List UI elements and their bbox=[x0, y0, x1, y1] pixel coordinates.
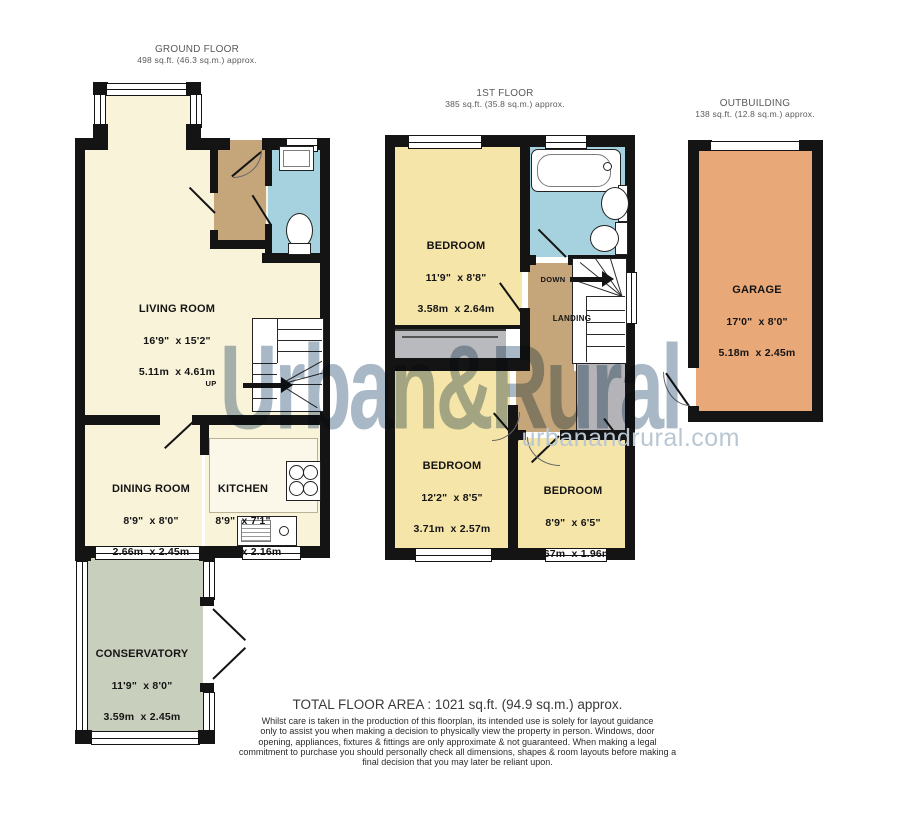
room-size-metric: 3.58m x 2.64m bbox=[395, 304, 517, 315]
room-name: GARAGE bbox=[697, 285, 817, 296]
room-name: BEDROOM bbox=[513, 486, 633, 497]
disclaimer-line: final decision that you may later be rel… bbox=[140, 757, 775, 767]
disclaimer-line: commitment to purchase you should person… bbox=[140, 747, 775, 757]
footer: TOTAL FLOOR AREA : 1021 sq.ft. (94.9 sq.… bbox=[140, 697, 775, 767]
kitchen-label: KITCHEN 8'9" x 7'1" 2.66m x 2.16m bbox=[186, 463, 300, 579]
room-size-imperial: 11'9" x 8'0" bbox=[82, 681, 202, 692]
room-size-metric: 2.66m x 2.16m bbox=[186, 547, 300, 558]
watermark-site: urbanandrural.com bbox=[515, 424, 740, 453]
garage-door bbox=[710, 141, 802, 151]
room-size-imperial: 17'0" x 8'0" bbox=[697, 317, 817, 328]
room-size-metric: 2.67m x 1.96m bbox=[513, 549, 633, 560]
room-size-metric: 3.71m x 2.57m bbox=[392, 524, 512, 535]
room-name: KITCHEN bbox=[186, 484, 300, 495]
floorplan-page: GROUND FLOOR 498 sq.ft. (46.3 sq.m.) app… bbox=[0, 0, 900, 817]
disclaimer-line: Whilst care is taken in the production o… bbox=[140, 716, 775, 726]
room-size-imperial: 12'2" x 8'5" bbox=[392, 493, 512, 504]
bedroom2-label: BEDROOM 12'2" x 8'5" 3.71m x 2.57m bbox=[392, 440, 512, 556]
room-name: BEDROOM bbox=[392, 461, 512, 472]
total-floor-area: TOTAL FLOOR AREA : 1021 sq.ft. (94.9 sq.… bbox=[140, 697, 775, 712]
room-name: BEDROOM bbox=[395, 241, 517, 252]
room-size-imperial: 8'9" x 6'5" bbox=[513, 518, 633, 529]
bedroom1-label: BEDROOM 11'9" x 8'8" 3.58m x 2.64m bbox=[395, 220, 517, 336]
room-name: LIVING ROOM bbox=[117, 304, 237, 315]
room-size-imperial: 8'9" x 7'1" bbox=[186, 516, 300, 527]
room-name: CONSERVATORY bbox=[82, 649, 202, 660]
disclaimer-line: opening, appliances, fixtures & fittings… bbox=[140, 737, 775, 747]
disclaimer-line: only to assist you when making a decisio… bbox=[140, 726, 775, 736]
room-size-imperial: 11'9" x 8'8" bbox=[395, 273, 517, 284]
bedroom3-label: BEDROOM 8'9" x 6'5" 2.67m x 1.96m bbox=[513, 465, 633, 581]
